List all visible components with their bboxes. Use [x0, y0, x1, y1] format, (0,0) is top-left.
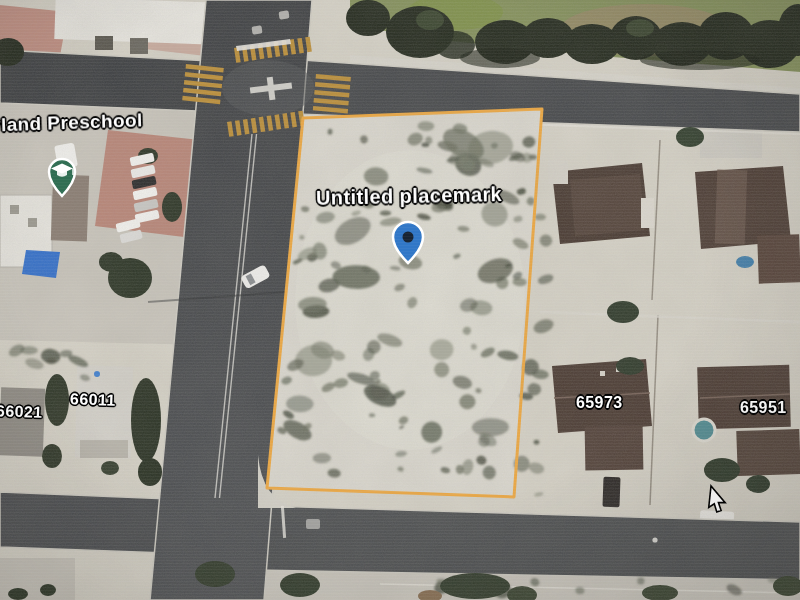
photo-grain — [0, 0, 800, 600]
house-number-65951: 65951 — [740, 399, 787, 417]
satellite-map-view[interactable]: yland Preschool Untitled placemark 66021… — [0, 0, 800, 600]
map-canvas[interactable] — [0, 0, 800, 600]
house-number-65973: 65973 — [576, 394, 623, 412]
untitled-placemark-label[interactable]: Untitled placemark — [316, 183, 503, 210]
house-number-66011: 66011 — [70, 390, 116, 410]
house-number-66021: 66021 — [0, 402, 43, 422]
